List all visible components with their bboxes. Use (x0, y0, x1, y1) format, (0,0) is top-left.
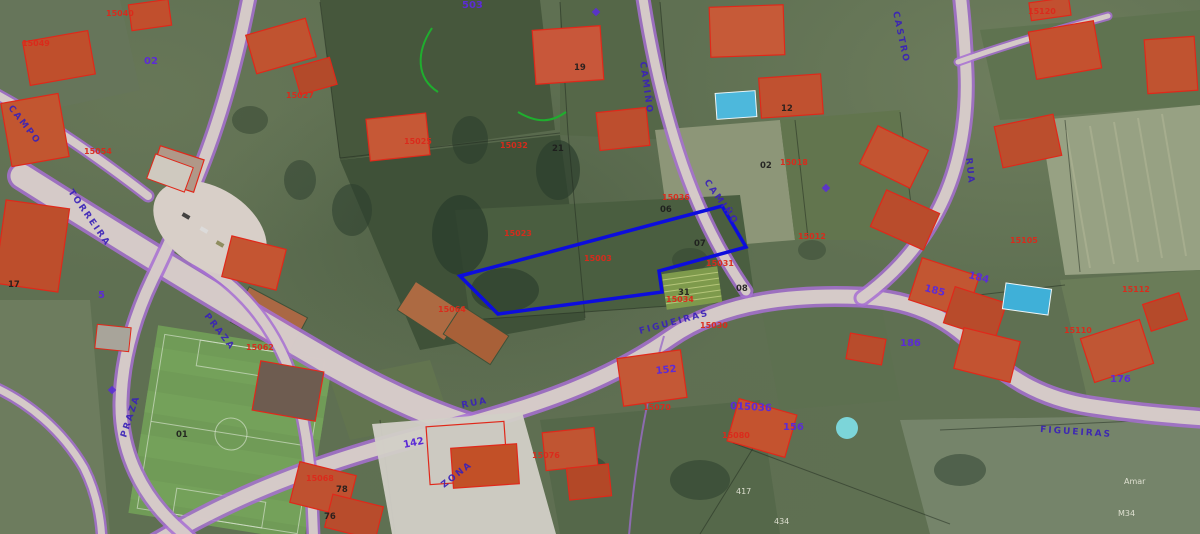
building (954, 328, 1020, 383)
map-svg: CAMPOTORREIRACAMIÑOCAMIÑOCASTROFIGUEIRAS… (0, 0, 1200, 534)
building (252, 361, 324, 421)
house-number-label: 02 (144, 56, 158, 67)
parcel-code-red-label: 15032 (500, 141, 528, 150)
building (709, 5, 785, 58)
house-number-label: 5 (98, 290, 105, 301)
house-number-label: 152 (655, 364, 677, 377)
building (617, 350, 687, 406)
house-number-label: 015036 (730, 401, 772, 414)
parcel-code-red-label: 15003 (584, 254, 612, 263)
parcel-code-red-label: 15023 (504, 229, 532, 238)
parcel-code-black-label: 78 (336, 485, 348, 495)
building (128, 0, 171, 31)
parcel-code-black-label: 01 (176, 430, 188, 440)
parcel-code-red-label: 15068 (306, 474, 334, 483)
round-pool (836, 417, 858, 439)
map-canvas[interactable]: CAMPOTORREIRACAMIÑOCAMIÑOCASTROFIGUEIRAS… (0, 0, 1200, 534)
parcel-code-red-label: 15070 (643, 403, 671, 412)
parcel-code-black-label: 12 (781, 104, 793, 114)
parcel-code-red-label: 15120 (1028, 7, 1056, 16)
building (1144, 36, 1198, 93)
building (596, 107, 650, 150)
building (95, 324, 131, 351)
parcel-code-red-label: 15031 (706, 259, 734, 268)
parcel-code-black-label: 21 (552, 144, 564, 154)
building (0, 200, 70, 292)
parcel-code-black-label: 17 (8, 280, 20, 290)
parcel-code-black-label: 07 (694, 239, 706, 249)
parcel-code-black-label: 02 (760, 161, 772, 171)
parcel-code-red-label: 15012 (798, 232, 826, 241)
parcel-code-red-label: 15018 (780, 158, 808, 167)
map-annotation-label: 417 (736, 487, 751, 496)
street-label: CASTRO (890, 11, 911, 65)
parcel-code-red-label: 15027 (286, 91, 314, 100)
parcel-code-red-label: 15054 (84, 147, 112, 156)
map-annotation-label: Amar (1124, 477, 1146, 486)
parcel-code-red-label: 15040 (106, 9, 134, 18)
parcel-code-red-label: 15080 (722, 431, 750, 440)
parcel-code-red-label: 15105 (1010, 236, 1038, 245)
parcel-code-red-label: 15049 (22, 39, 50, 48)
parcel-code-red-label: 15064 (438, 305, 466, 314)
parcel-code-black-label: 06 (660, 205, 672, 215)
parcel-code-red-label: 15025 (404, 137, 432, 146)
parcel-code-black-label: 19 (574, 63, 586, 73)
parcel-code-red-label: 15036 (662, 193, 690, 202)
parcel-code-red-label: 15062 (246, 343, 274, 352)
building (532, 26, 604, 85)
house-number-label: 186 (900, 338, 921, 349)
parcel-code-black-label: 08 (736, 284, 748, 294)
house-number-label: 176 (1110, 374, 1131, 385)
parcel-code-black-label: 31 (678, 288, 690, 298)
building (542, 427, 598, 470)
street-label: RUA (963, 157, 976, 185)
map-annotation-label: M34 (1118, 509, 1135, 518)
parcel-code-red-label: 15076 (532, 451, 560, 460)
parcel-code-red-label: 15112 (1122, 285, 1150, 294)
building (846, 333, 886, 365)
house-number-label: 156 (783, 422, 804, 433)
parcel-code-red-label: 15030 (700, 321, 728, 330)
house-number-label: 503 (462, 0, 483, 11)
swimming-pool (715, 91, 757, 120)
parcel-code-red-label: 15110 (1064, 326, 1092, 335)
map-annotation-label: 434 (774, 517, 789, 526)
parcel-code-black-label: 76 (324, 512, 336, 522)
building (566, 464, 611, 500)
building (293, 57, 337, 94)
